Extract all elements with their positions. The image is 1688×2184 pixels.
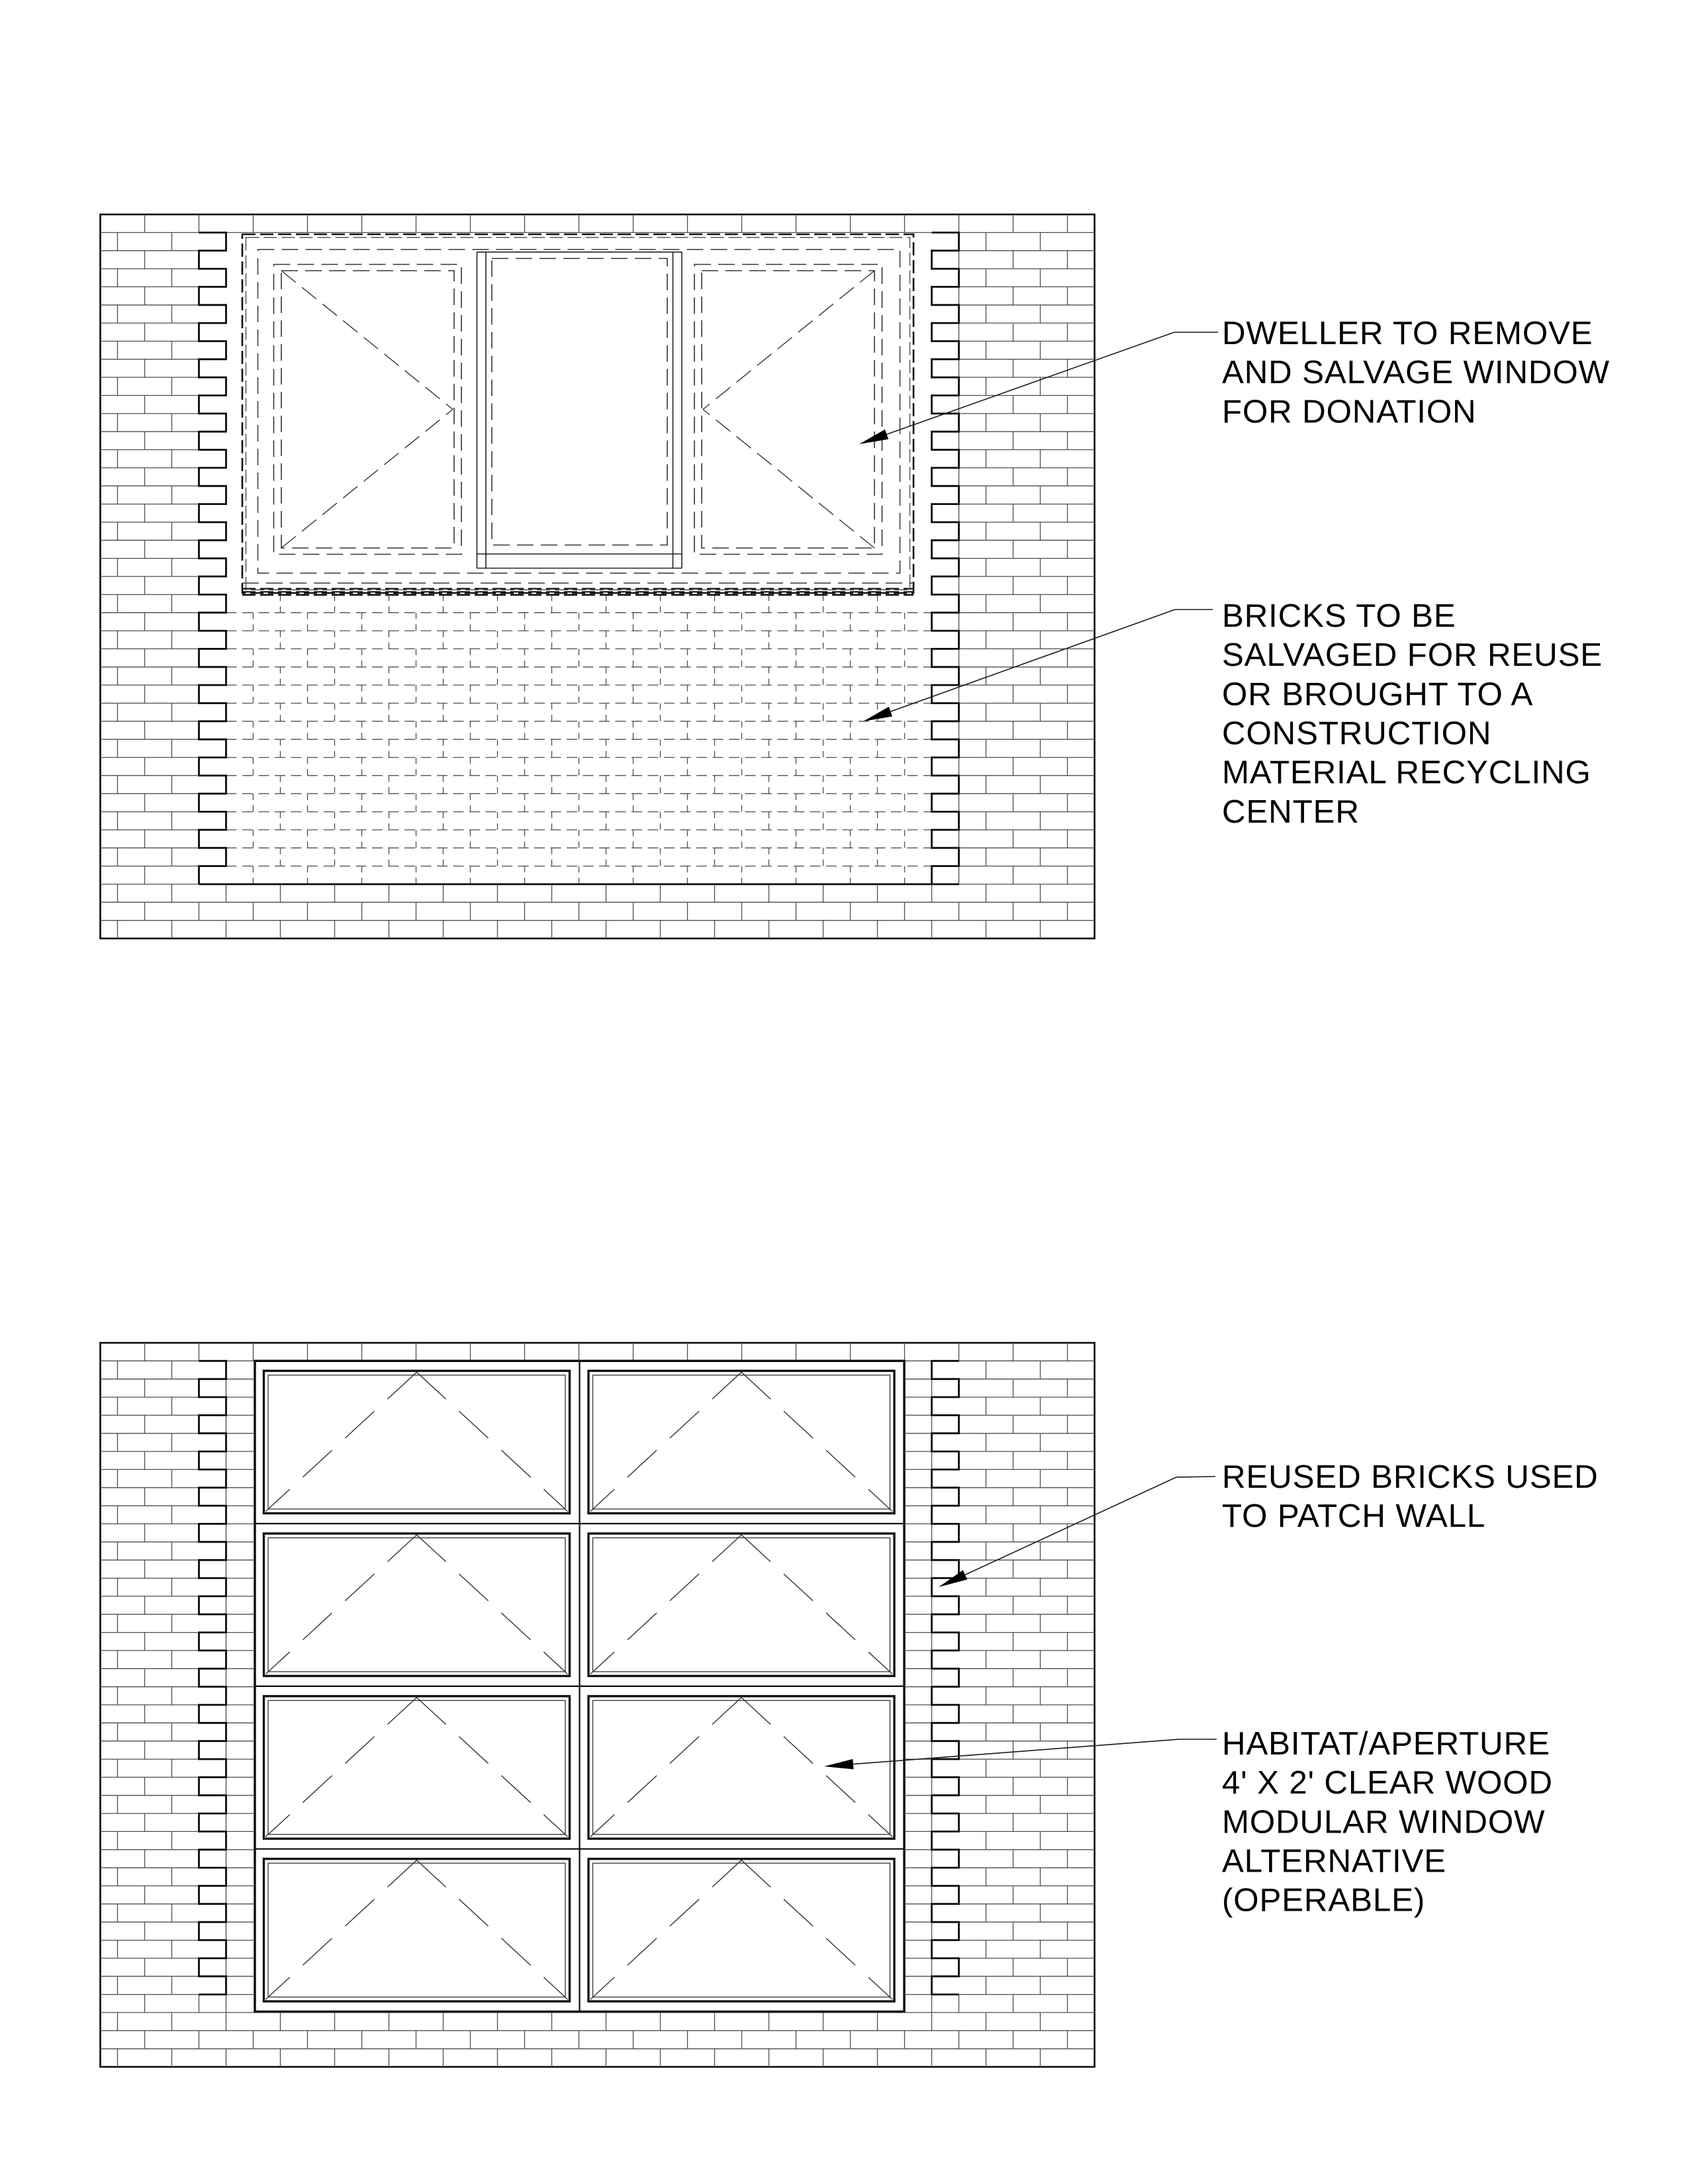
svg-text:CONSTRUCTION: CONSTRUCTION (1222, 715, 1491, 752)
svg-text:ALTERNATIVE: ALTERNATIVE (1222, 1843, 1446, 1880)
svg-text:TO PATCH WALL: TO PATCH WALL (1222, 1498, 1485, 1534)
svg-text:MODULAR WINDOW: MODULAR WINDOW (1222, 1803, 1545, 1840)
svg-text:DWELLER TO REMOVE: DWELLER TO REMOVE (1222, 315, 1593, 351)
svg-text:REUSED BRICKS USED: REUSED BRICKS USED (1222, 1459, 1599, 1495)
svg-text:FOR DONATION: FOR DONATION (1222, 393, 1476, 430)
svg-text:4' X 2' CLEAR WOOD: 4' X 2' CLEAR WOOD (1222, 1764, 1553, 1801)
svg-text:CENTER: CENTER (1222, 794, 1360, 830)
svg-text:SALVAGED FOR REUSE: SALVAGED FOR REUSE (1222, 637, 1603, 673)
svg-text:(OPERABLE): (OPERABLE) (1222, 1882, 1425, 1919)
svg-text:OR BROUGHT TO A: OR BROUGHT TO A (1222, 676, 1533, 712)
svg-text:HABITAT/APERTURE: HABITAT/APERTURE (1222, 1725, 1550, 1762)
svg-text:AND SALVAGE WINDOW: AND SALVAGE WINDOW (1222, 354, 1610, 390)
svg-text:BRICKS TO BE: BRICKS TO BE (1222, 598, 1456, 634)
svg-text:MATERIAL RECYCLING: MATERIAL RECYCLING (1222, 754, 1591, 791)
